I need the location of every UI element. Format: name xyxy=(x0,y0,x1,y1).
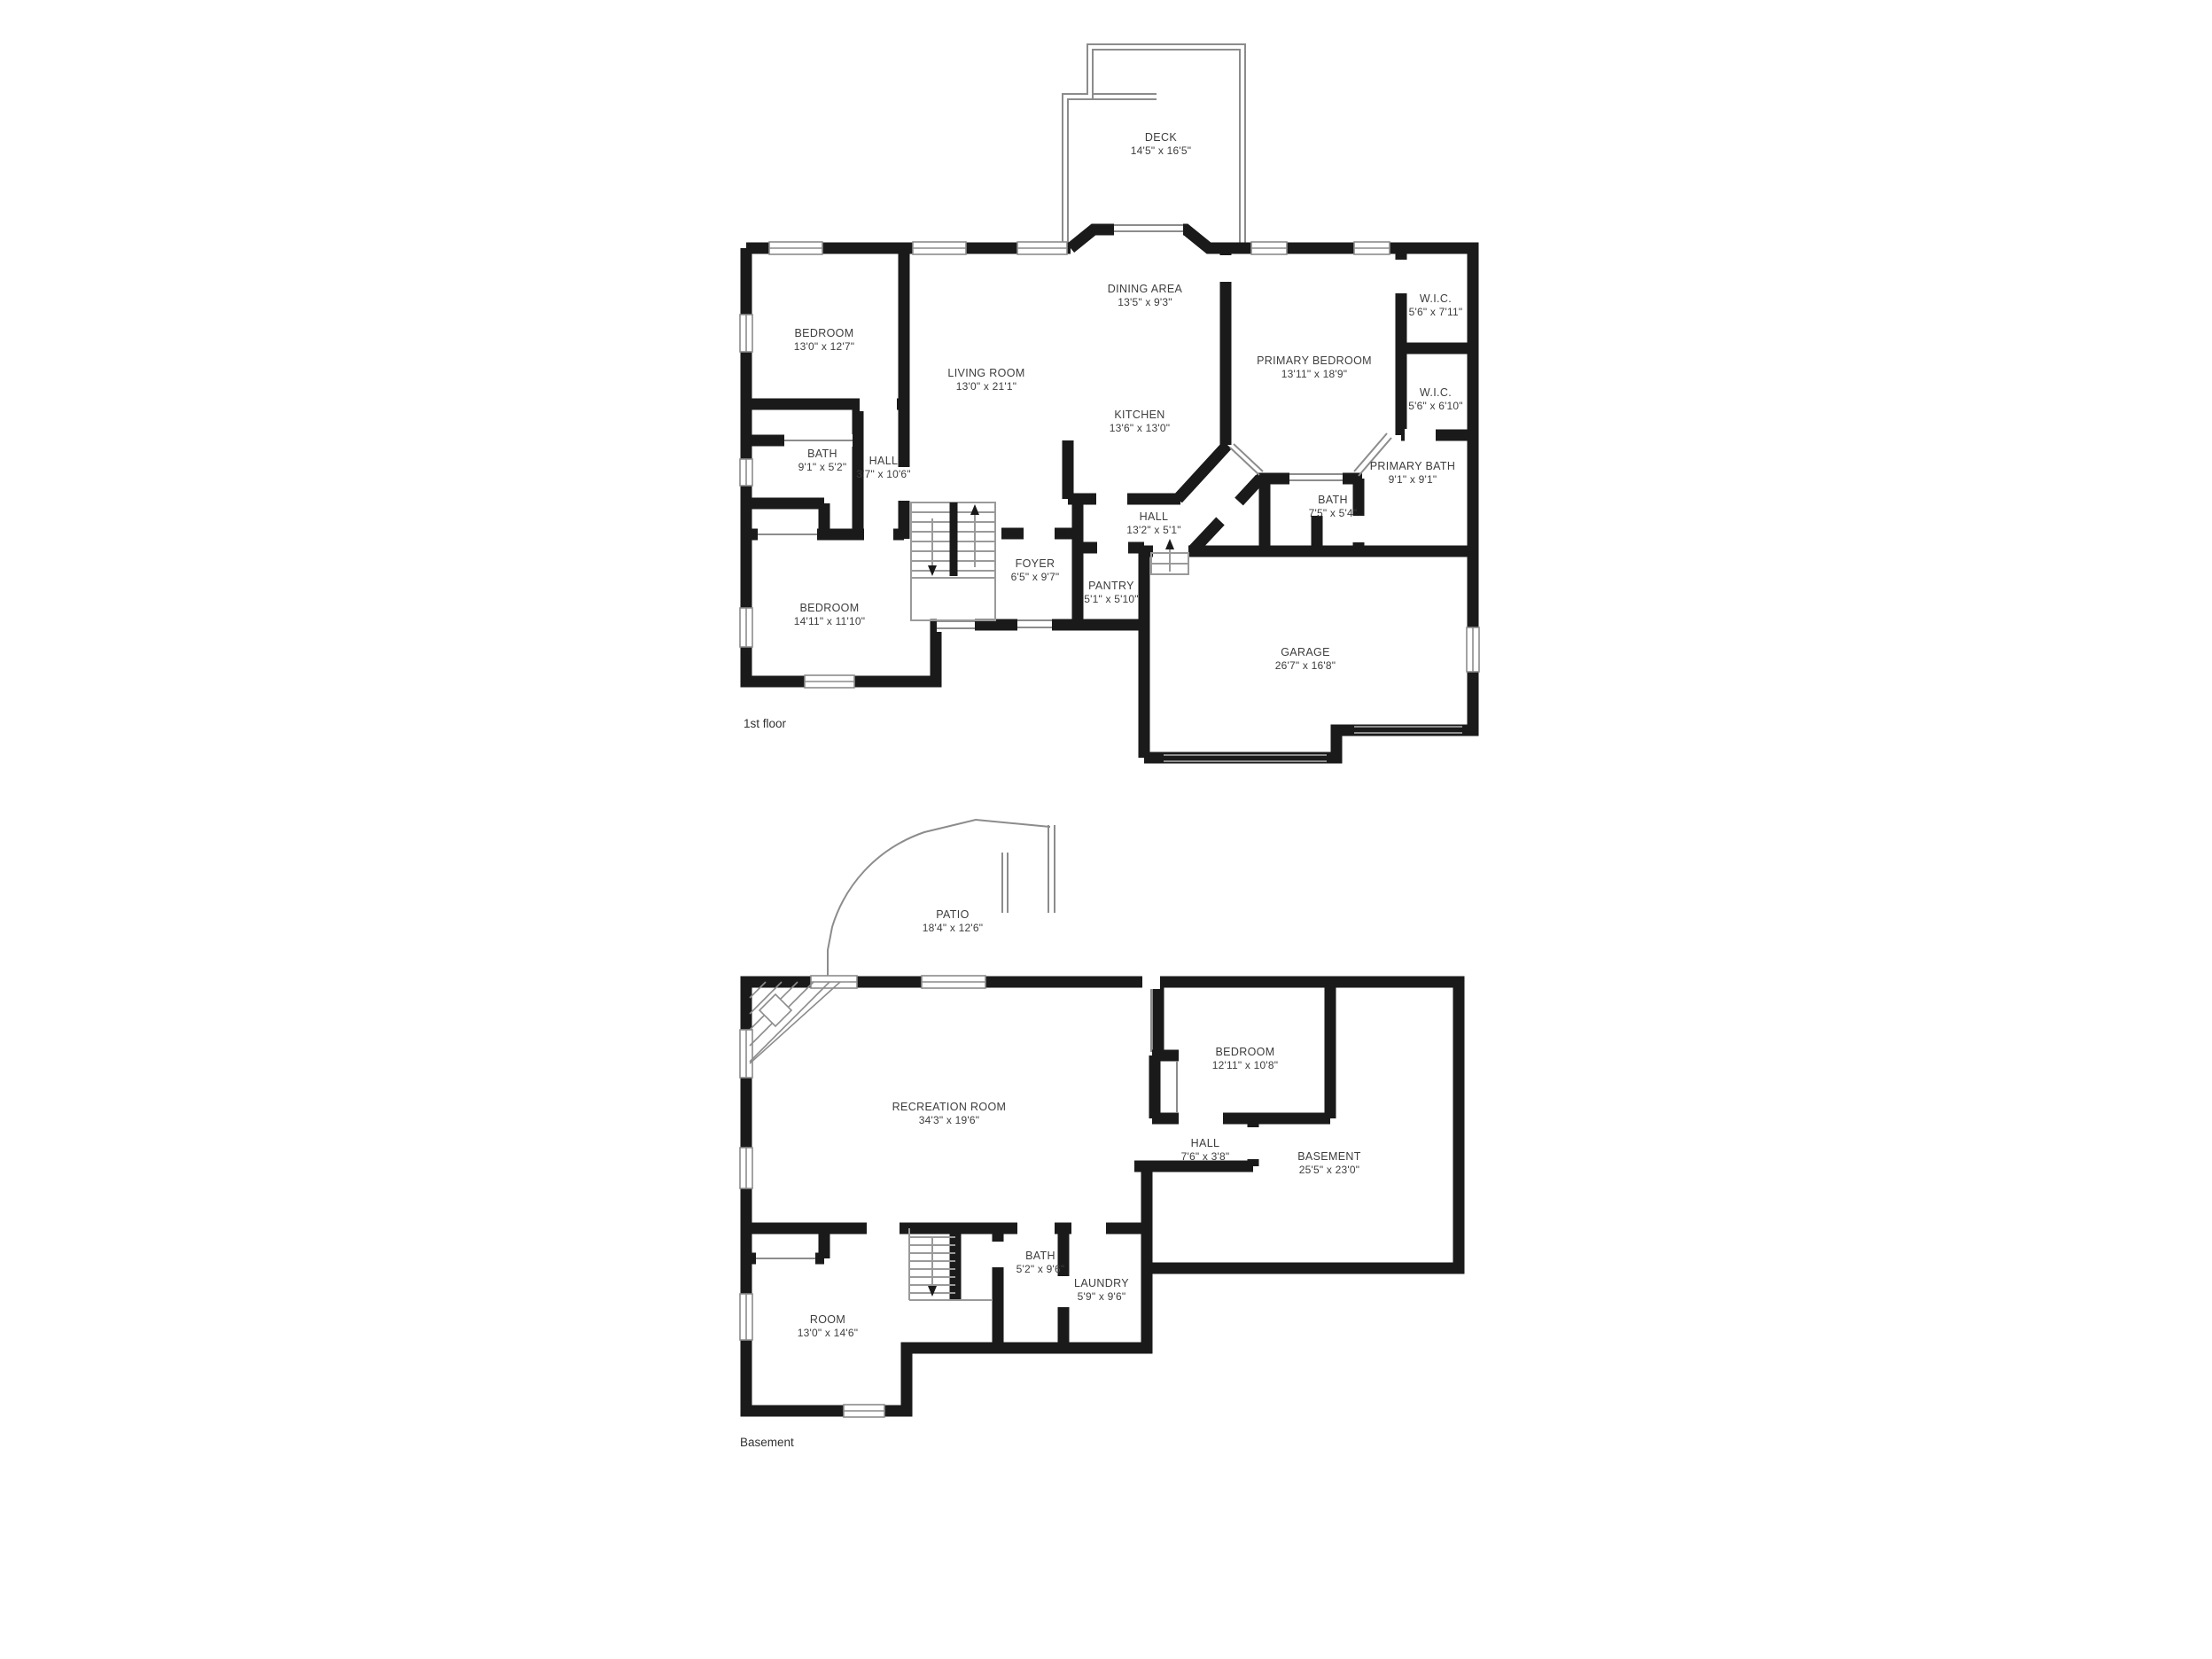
room-label-patio: PATIO 18'4" x 12'6" xyxy=(923,908,983,935)
room-label-basement-room: ROOM 13'0" x 14'6" xyxy=(798,1313,858,1340)
room-label-basement-area: BASEMENT 25'5" x 23'0" xyxy=(1297,1150,1361,1177)
room-label-recreation-room: RECREATION ROOM 34'3" x 19'6" xyxy=(892,1101,1007,1127)
room-label-dining-area: DINING AREA 13'5" x 9'3" xyxy=(1108,283,1182,309)
room-label-bath-center: BATH 7'5" x 5'4" xyxy=(1309,494,1358,520)
room-label-hall-center: HALL 13'2" x 5'1" xyxy=(1126,510,1181,537)
room-label-bedroom-2: BEDROOM 14'11" x 11'10" xyxy=(794,602,865,628)
room-label-kitchen: KITCHEN 13'6" x 13'0" xyxy=(1110,409,1170,435)
basement-walls xyxy=(746,982,1459,1411)
floor-title-first-floor: 1st floor xyxy=(744,717,786,730)
basement-thin-structures xyxy=(828,820,1157,1052)
room-label-pantry: PANTRY 5'1" x 5'10" xyxy=(1084,580,1139,606)
room-label-wic-1: W.I.C. 5'6" x 7'11" xyxy=(1409,292,1463,319)
room-label-bedroom-1: BEDROOM 13'0" x 12'7" xyxy=(794,327,854,354)
room-label-primary-bath: PRIMARY BATH 9'1" x 9'1" xyxy=(1370,460,1456,487)
basement-openings xyxy=(1142,976,1160,989)
basement-corner-hatch xyxy=(750,982,840,1063)
room-label-garage: GARAGE 26'7" x 16'8" xyxy=(1275,646,1336,673)
room-label-primary-bedroom: PRIMARY BEDROOM 13'11" x 18'9" xyxy=(1257,354,1372,381)
floor-title-basement: Basement xyxy=(740,1436,794,1449)
room-label-basement-hall: HALL 7'6" x 3'8" xyxy=(1181,1137,1230,1164)
room-label-basement-bath: BATH 5'2" x 9'6" xyxy=(1016,1250,1065,1276)
room-label-hall-left: HALL 3'7" x 10'6" xyxy=(856,455,911,481)
room-label-deck: DECK 14'5" x 16'5" xyxy=(1131,131,1191,158)
room-label-wic-2: W.I.C. 5'6" x 6'10" xyxy=(1408,386,1463,413)
floorplan-canvas xyxy=(0,0,2212,1659)
room-label-bath-left: BATH 9'1" x 5'2" xyxy=(798,448,847,474)
room-label-foyer: FOYER 6'5" x 9'7" xyxy=(1011,557,1060,584)
floorplan-page: DECK 14'5" x 16'5" DINING AREA 13'5" x 9… xyxy=(0,0,2212,1659)
first-floor-stairs xyxy=(911,502,995,620)
room-label-laundry: LAUNDRY 5'9" x 9'6" xyxy=(1074,1277,1129,1304)
room-label-living-room: LIVING ROOM 13'0" x 21'1" xyxy=(947,367,1024,393)
room-label-basement-bedroom: BEDROOM 12'11" x 10'8" xyxy=(1212,1046,1278,1072)
